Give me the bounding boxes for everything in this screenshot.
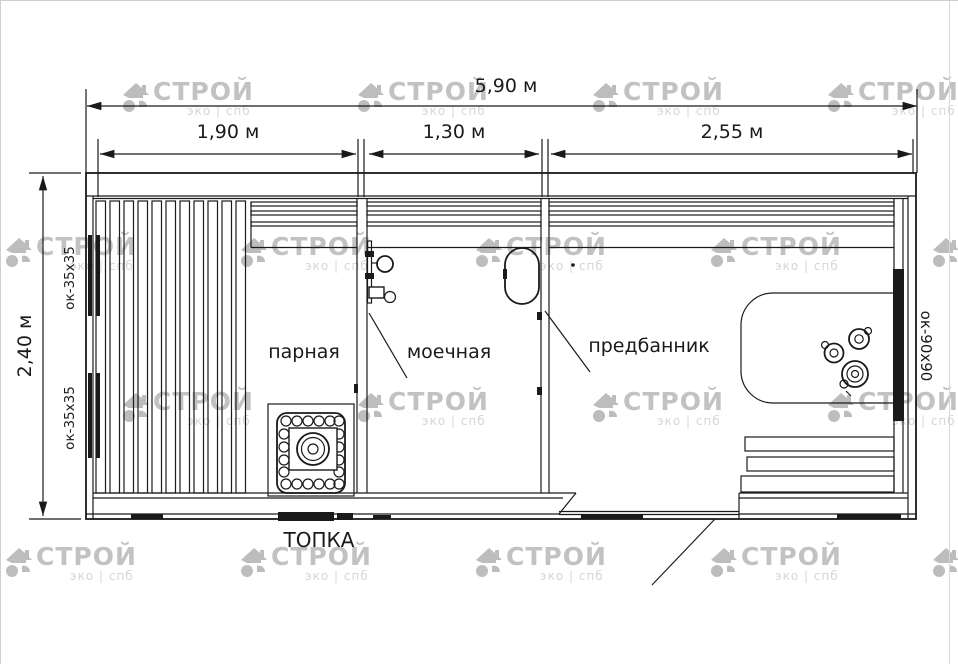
shower-mixer	[365, 241, 407, 378]
mugs	[822, 328, 872, 397]
page-edge-line	[949, 1, 950, 664]
floor-plan-page: СТРОЙэко | спбСТРОЙэко | спбСТРОЙэко | с…	[0, 0, 958, 664]
anteroom-bench	[741, 437, 894, 492]
furnace-label: ТОПКА	[284, 528, 355, 552]
door-leader-line	[652, 519, 715, 585]
furnace-hatch	[278, 512, 334, 521]
floor-plan-drawing	[1, 1, 958, 664]
window-marks	[88, 235, 904, 458]
room-label-ante: предбанник	[588, 335, 709, 357]
top-lining-boards	[251, 202, 894, 248]
dimension-lines	[29, 89, 917, 519]
entrance-door-opening	[559, 493, 739, 585]
exterior-walls	[86, 173, 916, 519]
ante-leader-line	[545, 311, 590, 372]
room-label-wash: моечная	[407, 341, 491, 363]
dim-wash-width-label: 1,30 м	[423, 121, 486, 143]
vent-dot	[571, 263, 575, 267]
room-label-steam: парная	[268, 341, 340, 363]
water-tank	[503, 248, 590, 372]
stove	[268, 404, 354, 521]
dim-steam-width-label: 1,90 м	[197, 121, 260, 143]
window-label-left-top: ок-35x35	[62, 246, 78, 310]
partition-steam-wash	[354, 198, 367, 493]
window-label-right: ок-90x90	[917, 311, 935, 382]
steam-room-bench-slats	[96, 201, 246, 493]
partition-wash-ante	[537, 198, 549, 493]
window-label-left-bottom: ок-35x35	[62, 386, 78, 450]
wash-leader-line	[369, 313, 407, 378]
dim-depth-label: 2,40 м	[14, 315, 36, 378]
dim-overall-width-label: 5,90 м	[475, 75, 538, 97]
dim-ante-width-label: 2,55 м	[701, 121, 764, 143]
table	[741, 293, 894, 403]
